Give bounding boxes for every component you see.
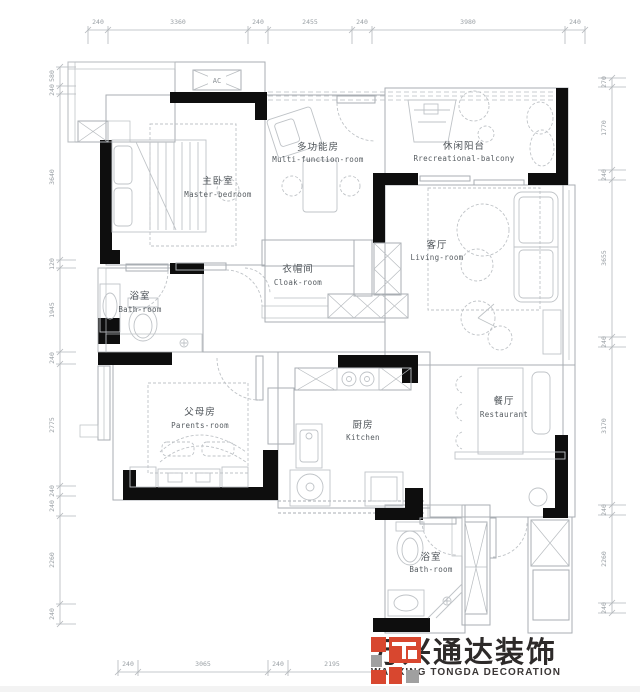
svg-text:浴室: 浴室 bbox=[420, 551, 441, 563]
svg-text:Bath-room: Bath-room bbox=[118, 305, 162, 314]
structural-walls bbox=[98, 88, 568, 632]
svg-text:客厅: 客厅 bbox=[426, 239, 447, 251]
dim-top-3: 2455 bbox=[302, 18, 318, 26]
dimension-chain-left: 580 240 3640 120 1945 240 2775 240 240 2… bbox=[48, 64, 76, 627]
dimension-chain-right: 270 1770 240 3655 240 3170 240 2260 240 bbox=[598, 75, 626, 616]
dim-left-8: 240 bbox=[48, 500, 56, 512]
dim-top-5: 3980 bbox=[460, 18, 476, 26]
dim-right-3: 3655 bbox=[600, 250, 608, 266]
living-room-furniture bbox=[428, 188, 561, 354]
dim-top-0: 240 bbox=[92, 18, 104, 26]
dim-bottom-0: 240 bbox=[122, 660, 134, 668]
svg-text:衣帽间: 衣帽间 bbox=[282, 263, 314, 275]
svg-text:多功能房: 多功能房 bbox=[297, 141, 339, 153]
dim-left-4: 1945 bbox=[48, 302, 56, 318]
dim-right-8: 240 bbox=[600, 602, 608, 614]
dim-right-5: 3170 bbox=[600, 418, 608, 434]
dim-bottom-3: 2195 bbox=[324, 660, 340, 668]
dim-left-7: 240 bbox=[48, 485, 56, 497]
room-label-cloak: 衣帽间Cloak-room bbox=[274, 263, 322, 287]
svg-text:Living-room: Living-room bbox=[411, 253, 464, 262]
svg-text:Rrecreational-balcony: Rrecreational-balcony bbox=[413, 154, 514, 163]
room-label-master: 主卧室Master-bedroom bbox=[184, 175, 252, 199]
dim-top-4: 240 bbox=[356, 18, 368, 26]
dim-right-4: 240 bbox=[600, 336, 608, 348]
dim-left-3: 120 bbox=[48, 258, 56, 270]
svg-text:Kitchen: Kitchen bbox=[346, 433, 380, 442]
room-label-multi: 多功能房Multi-function-room bbox=[272, 141, 364, 164]
company-logo: 万兴通达装饰 WANXING TONGDA DECORATION bbox=[371, 637, 561, 678]
svg-text:浴室: 浴室 bbox=[129, 290, 150, 302]
svg-text:休闲阳台: 休闲阳台 bbox=[443, 140, 485, 152]
svg-text:Multi-function-room: Multi-function-room bbox=[272, 155, 364, 164]
svg-text:Cloak-room: Cloak-room bbox=[274, 278, 322, 287]
room-label-balcony: 休闲阳台Rrecreational-balcony bbox=[413, 140, 514, 163]
ac-unit: AC bbox=[193, 70, 241, 90]
room-label-living: 客厅Living-room bbox=[411, 239, 464, 262]
dim-right-0: 270 bbox=[600, 76, 608, 88]
dim-bottom-2: 240 bbox=[272, 660, 284, 668]
bay-cabinet bbox=[78, 121, 130, 142]
dimension-chain-top: 240 3360 240 2455 240 3980 240 bbox=[85, 18, 588, 44]
dim-right-7: 2260 bbox=[600, 551, 608, 567]
dim-left-5: 240 bbox=[48, 352, 56, 364]
floor-plan-canvas: 240 3360 240 2455 240 3980 240 240 3065 … bbox=[0, 0, 640, 692]
room-labels: 主卧室Master-bedroom 多功能房Multi-function-roo… bbox=[118, 140, 528, 574]
company-logo-icon bbox=[371, 637, 421, 685]
dim-top-2: 240 bbox=[252, 18, 264, 26]
dim-top-1: 3360 bbox=[170, 18, 186, 26]
bottom-band bbox=[0, 686, 640, 692]
dim-left-1: 240 bbox=[48, 84, 56, 96]
dining-furniture bbox=[455, 368, 565, 506]
room-label-bath1: 浴室Bath-room bbox=[118, 290, 162, 314]
svg-text:厨房: 厨房 bbox=[352, 419, 373, 431]
dim-left-2: 3640 bbox=[48, 169, 56, 185]
dim-right-2: 240 bbox=[600, 169, 608, 181]
dim-top-6: 240 bbox=[569, 18, 581, 26]
dim-left-6: 2775 bbox=[48, 417, 56, 433]
svg-text:Restaurant: Restaurant bbox=[480, 410, 528, 419]
svg-text:Master-bedroom: Master-bedroom bbox=[184, 190, 252, 199]
shoe-cabinet bbox=[328, 294, 408, 318]
dim-right-6: 240 bbox=[600, 504, 608, 516]
svg-text:Bath-room: Bath-room bbox=[409, 565, 453, 574]
hall-closet-b bbox=[531, 520, 569, 620]
dim-bottom-1: 3065 bbox=[195, 660, 211, 668]
hall-closet-a bbox=[465, 522, 487, 614]
dim-left-0: 580 bbox=[48, 70, 56, 82]
svg-text:父母房: 父母房 bbox=[184, 406, 216, 418]
svg-text:主卧室: 主卧室 bbox=[202, 175, 234, 187]
room-label-restaurant: 餐厅Restaurant bbox=[480, 395, 528, 419]
room-label-kitchen: 厨房Kitchen bbox=[346, 419, 380, 442]
dim-right-1: 1770 bbox=[600, 120, 608, 136]
svg-text:Parents-room: Parents-room bbox=[171, 421, 229, 430]
parents-bed bbox=[130, 383, 248, 487]
kitchen-counter bbox=[268, 368, 411, 444]
ac-label: AC bbox=[213, 77, 221, 85]
room-label-parents: 父母房Parents-room bbox=[171, 406, 229, 430]
floor-plan-page: 240 3360 240 2455 240 3980 240 240 3065 … bbox=[0, 0, 640, 692]
room-label-bath2: 浴室Bath-room bbox=[409, 551, 453, 574]
dim-left-10: 240 bbox=[48, 608, 56, 620]
svg-text:餐厅: 餐厅 bbox=[493, 395, 514, 407]
dim-left-9: 2260 bbox=[48, 552, 56, 568]
